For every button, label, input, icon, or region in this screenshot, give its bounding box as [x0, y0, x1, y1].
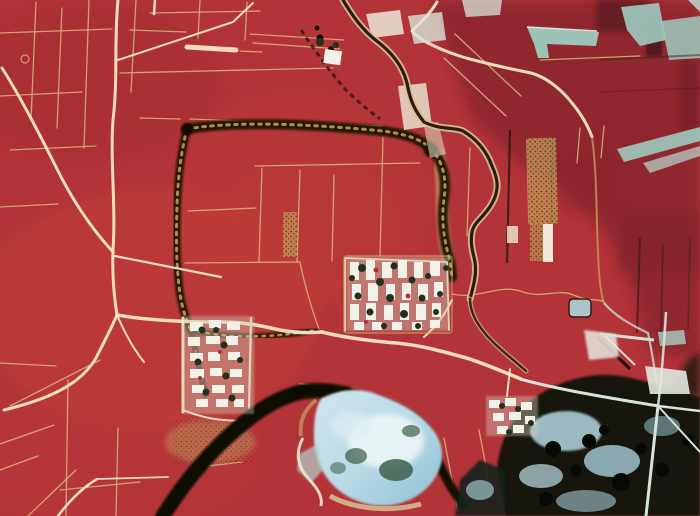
- building: [232, 385, 244, 393]
- building: [372, 322, 382, 330]
- building: [505, 398, 516, 406]
- building: [416, 304, 426, 320]
- building: [350, 304, 359, 320]
- building: [192, 385, 204, 393]
- small-pond: [569, 299, 591, 317]
- building: [323, 49, 342, 65]
- building: [513, 425, 524, 433]
- building: [212, 385, 225, 393]
- building: [190, 369, 204, 378]
- building: [521, 402, 532, 410]
- building: [230, 369, 242, 377]
- building: [368, 283, 378, 301]
- building: [206, 336, 220, 344]
- building: [210, 368, 222, 376]
- building: [398, 260, 407, 278]
- building: [382, 262, 392, 278]
- building: [489, 400, 500, 408]
- building: [430, 261, 440, 276]
- building: [234, 399, 244, 407]
- building: [216, 399, 228, 407]
- aerial-photo: False-color infrared aerial photograph: [0, 0, 700, 516]
- aerial-photo-canvas: False-color infrared aerial photograph: [0, 0, 700, 516]
- building: [509, 412, 521, 420]
- hamlet: [486, 396, 538, 436]
- building: [226, 336, 238, 345]
- west-village: [184, 316, 254, 414]
- building: [196, 399, 208, 407]
- building: [414, 262, 423, 278]
- building: [493, 413, 504, 421]
- main-village: [344, 256, 452, 333]
- building: [384, 305, 393, 320]
- building: [209, 320, 221, 328]
- building: [392, 322, 402, 330]
- building: [354, 322, 364, 330]
- building: [188, 337, 200, 346]
- white-field-strip: [543, 224, 553, 262]
- building: [227, 322, 240, 330]
- building: [208, 352, 220, 361]
- building: [430, 320, 440, 328]
